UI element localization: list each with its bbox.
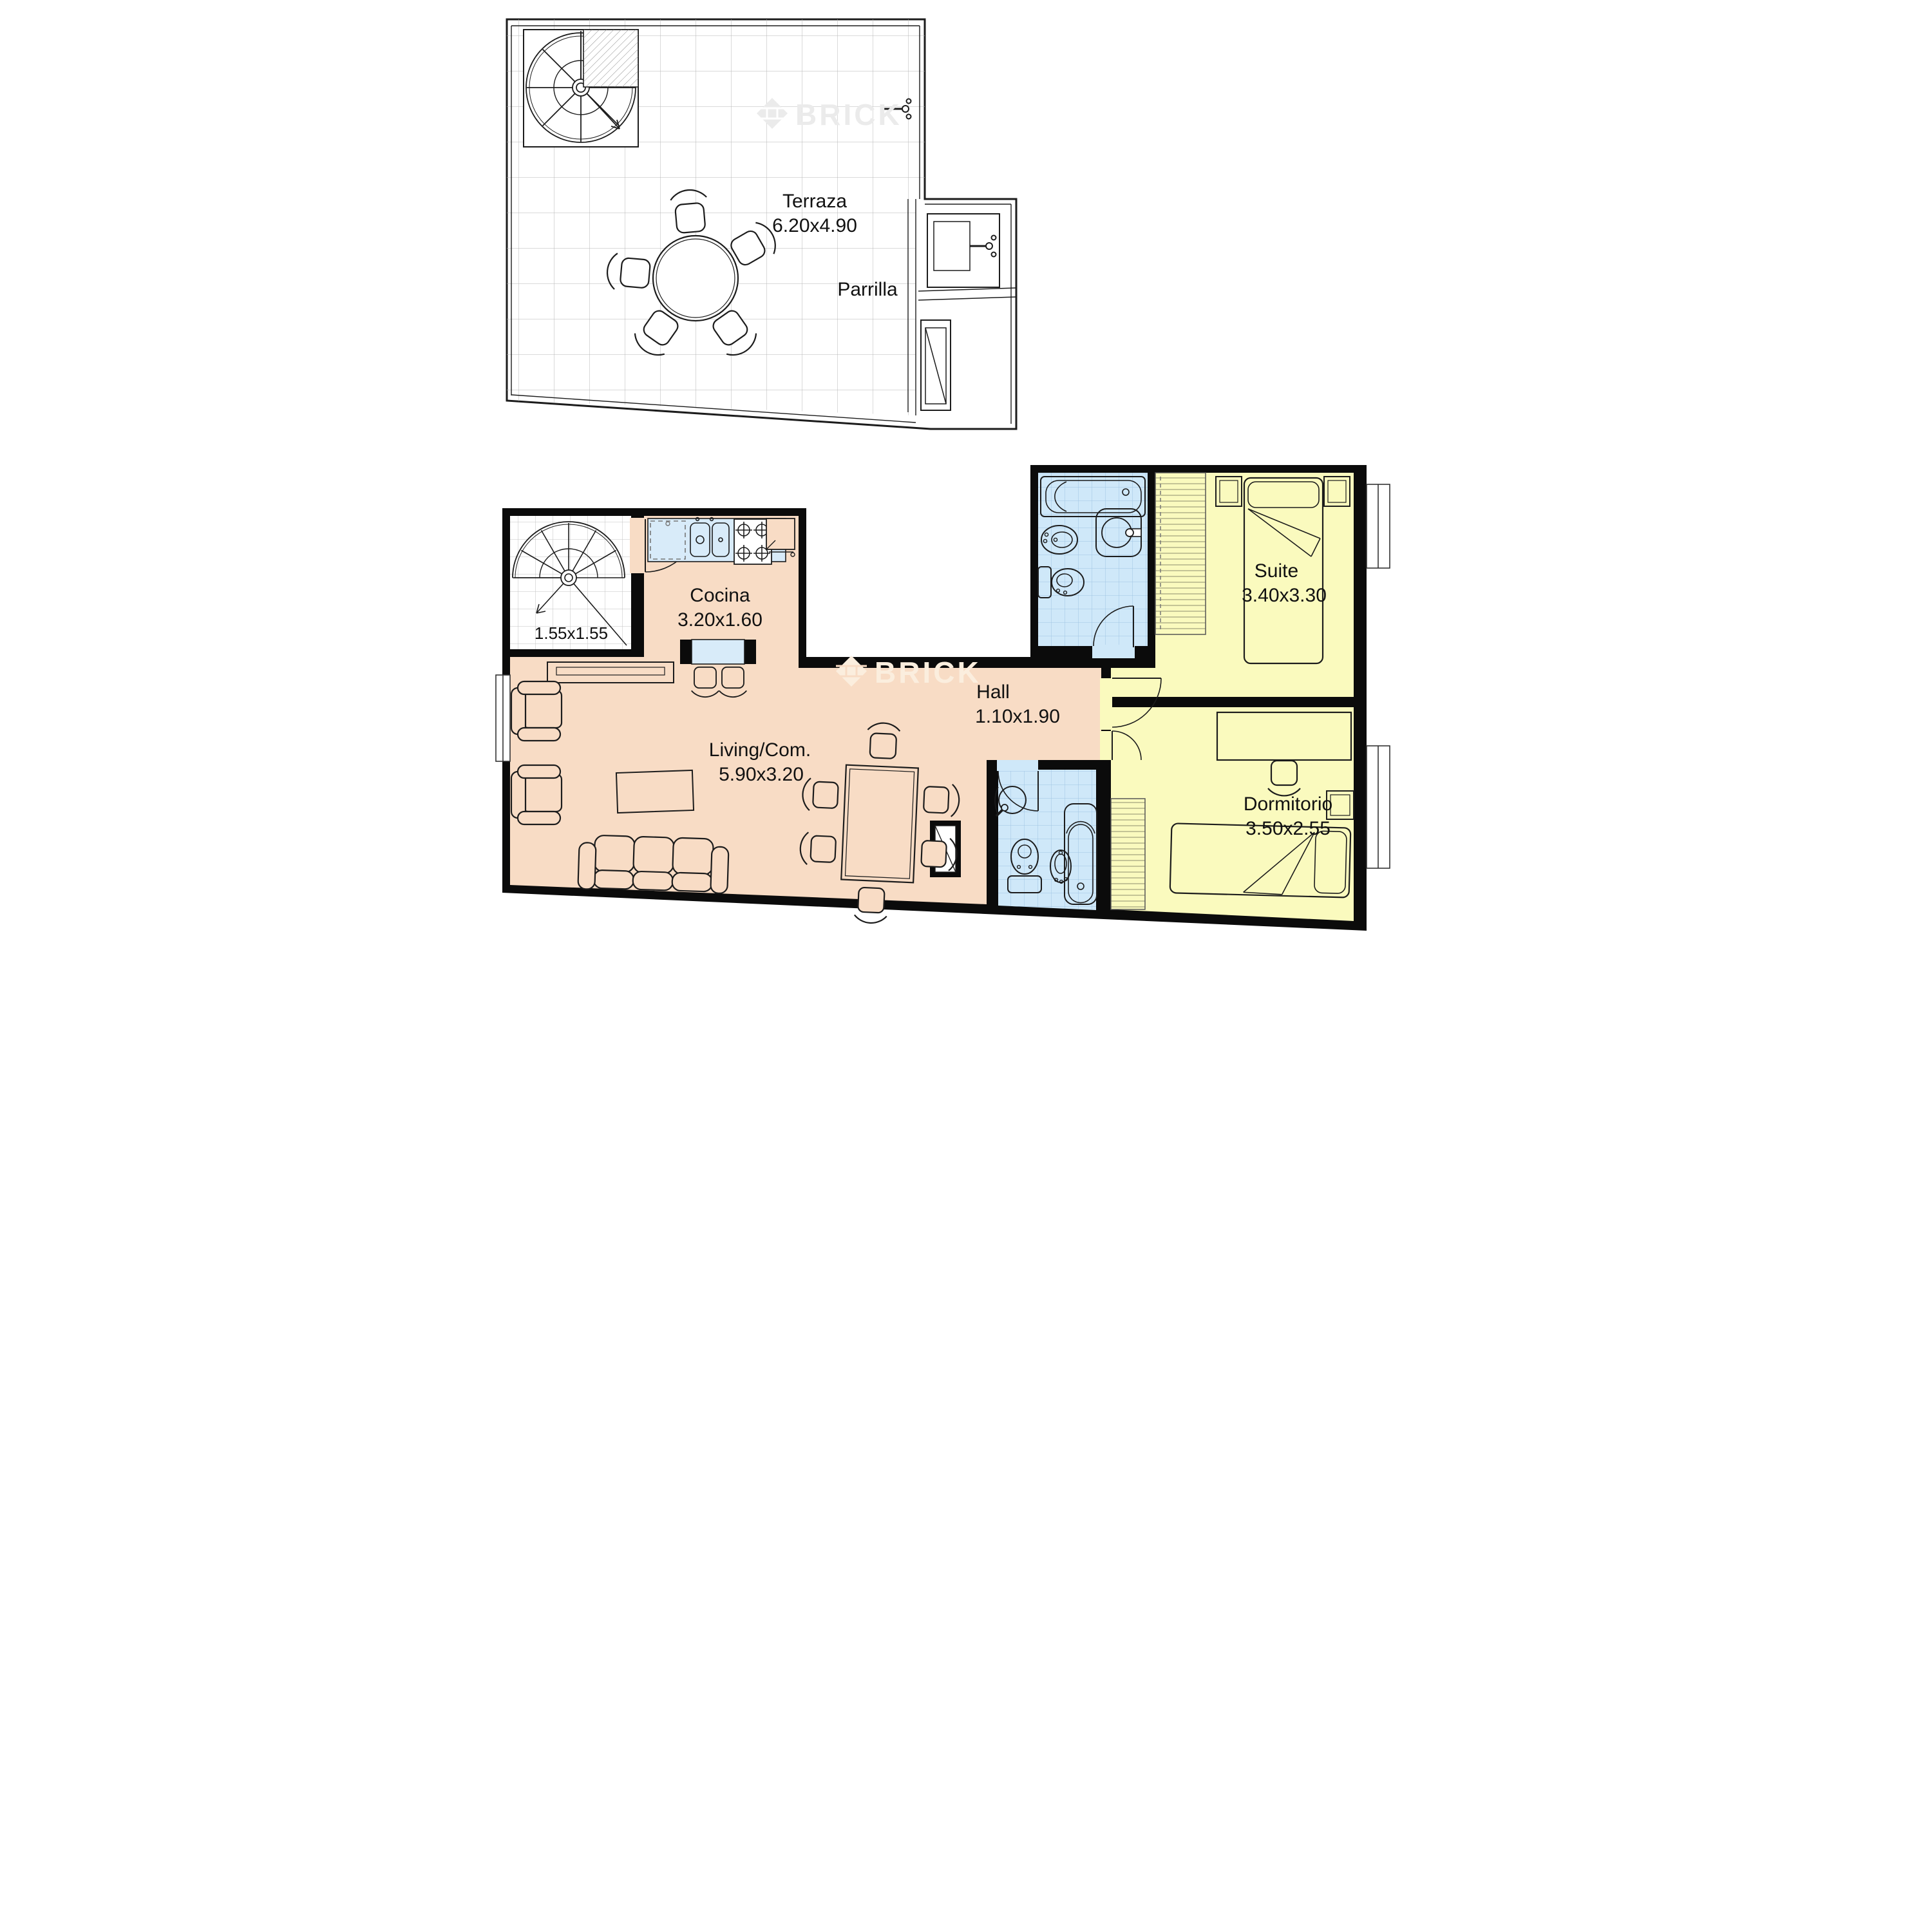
living-label: Living/Com. (709, 739, 811, 761)
dormitorio-label: Dormitorio (1244, 794, 1332, 815)
coffee-table (616, 770, 694, 813)
brick-watermark-text: BRICK (795, 98, 902, 131)
hall-label: Hall (976, 681, 1010, 703)
living-dims: 5.90x3.20 (719, 764, 804, 785)
terrace-dims: 6.20x4.90 (772, 215, 857, 236)
dormitorio-closet (1111, 799, 1145, 909)
spiral-staircase-terrace (524, 30, 638, 147)
armchair-1 (511, 681, 562, 741)
armchair-2 (511, 765, 562, 824)
cocina-dims: 3.20x1.60 (677, 609, 762, 631)
hall-dims: 1.10x1.90 (975, 706, 1060, 727)
brick-watermark-text: BRICK (875, 656, 981, 689)
desk (1217, 712, 1351, 760)
suite-label: Suite (1255, 560, 1298, 582)
terrace-plan: BRICK Terraza 6.20x4.90 Parrilla (507, 19, 1016, 429)
terrace-label: Terraza (782, 191, 847, 212)
parrilla-label: Parrilla (837, 279, 898, 300)
nightstand-left (1216, 477, 1242, 506)
suite-dims: 3.40x3.30 (1242, 585, 1327, 606)
cocina-label: Cocina (690, 585, 750, 606)
dormitorio-dims: 3.50x2.55 (1245, 818, 1331, 839)
suite-closet (1155, 473, 1206, 634)
parrilla-grill (921, 320, 951, 410)
tv-cabinet (547, 662, 674, 683)
floor-plan-page: BRICK Terraza 6.20x4.90 Parrilla (483, 0, 1449, 960)
nightstand-right (1324, 477, 1350, 506)
floorplan-svg: BRICK Terraza 6.20x4.90 Parrilla (483, 0, 1449, 960)
parrilla-sink (927, 214, 999, 287)
kitchen-counter (648, 518, 795, 564)
apartment-plan: BRICK 1.55x1.55 Cocina 3.20x1.60 Living/… (496, 465, 1390, 931)
sofa (578, 835, 729, 893)
stairs-dims: 1.55x1.55 (535, 623, 608, 643)
